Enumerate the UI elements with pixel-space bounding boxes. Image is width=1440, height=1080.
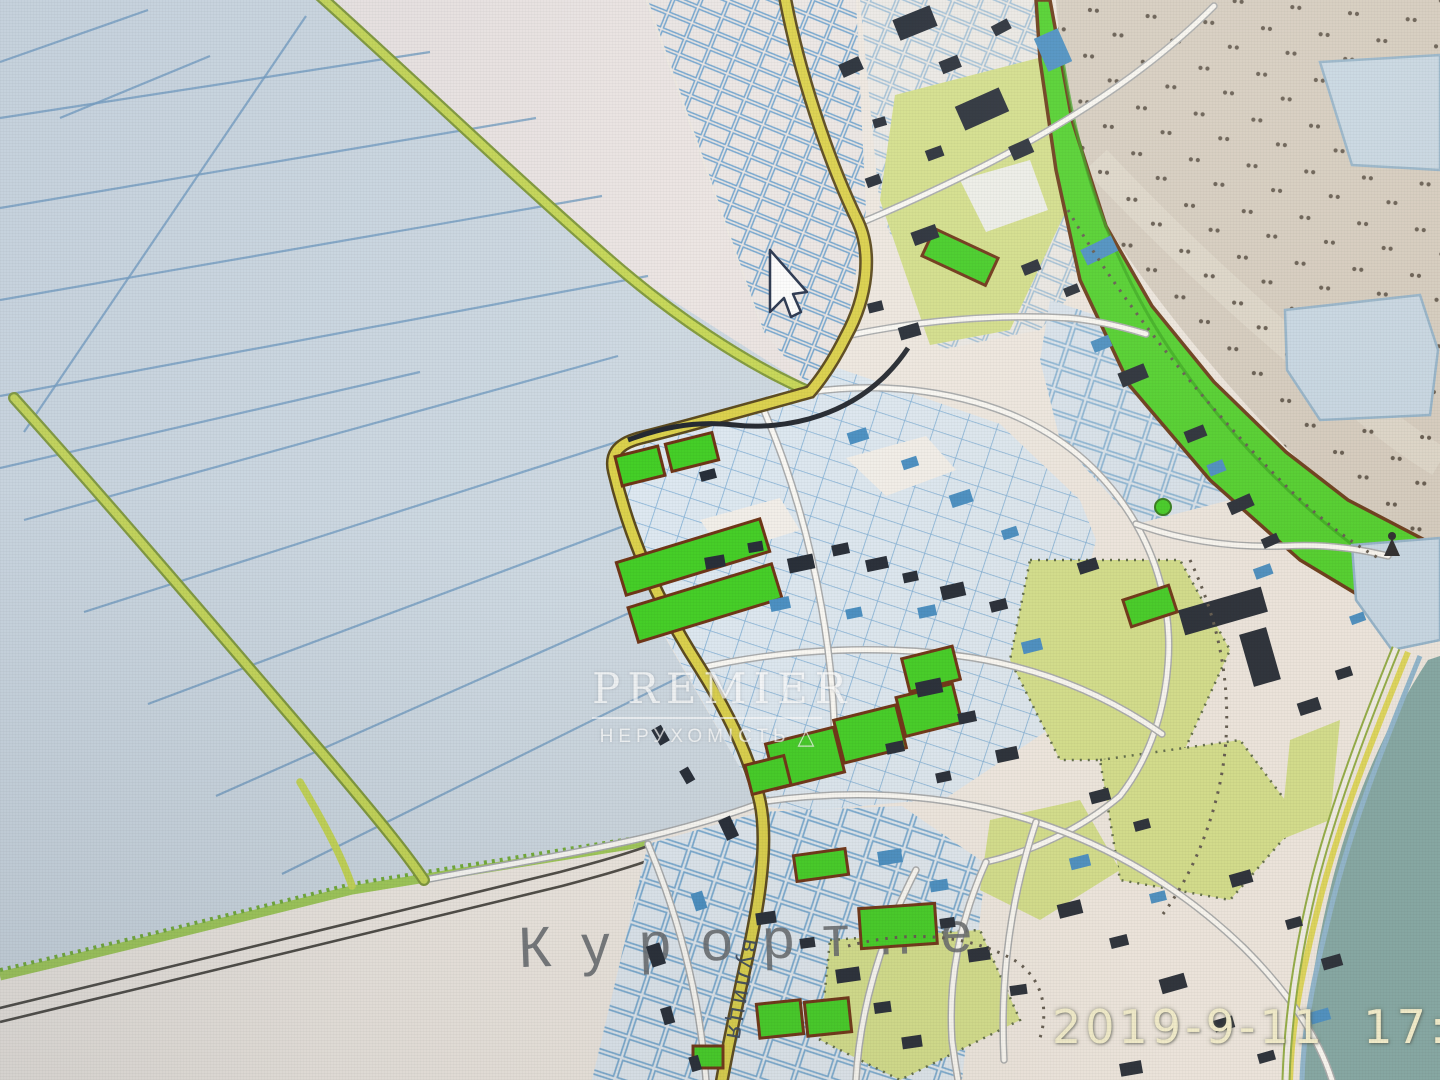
map-scene: Курортне	[0, 0, 1440, 1080]
map-canvas[interactable]: Курортне	[0, 0, 1440, 1080]
photo-of-screen: Курортне	[0, 0, 1440, 1080]
pond	[1285, 295, 1438, 420]
camera-timestamp: 2019-9-11 17:48	[1052, 1000, 1440, 1054]
